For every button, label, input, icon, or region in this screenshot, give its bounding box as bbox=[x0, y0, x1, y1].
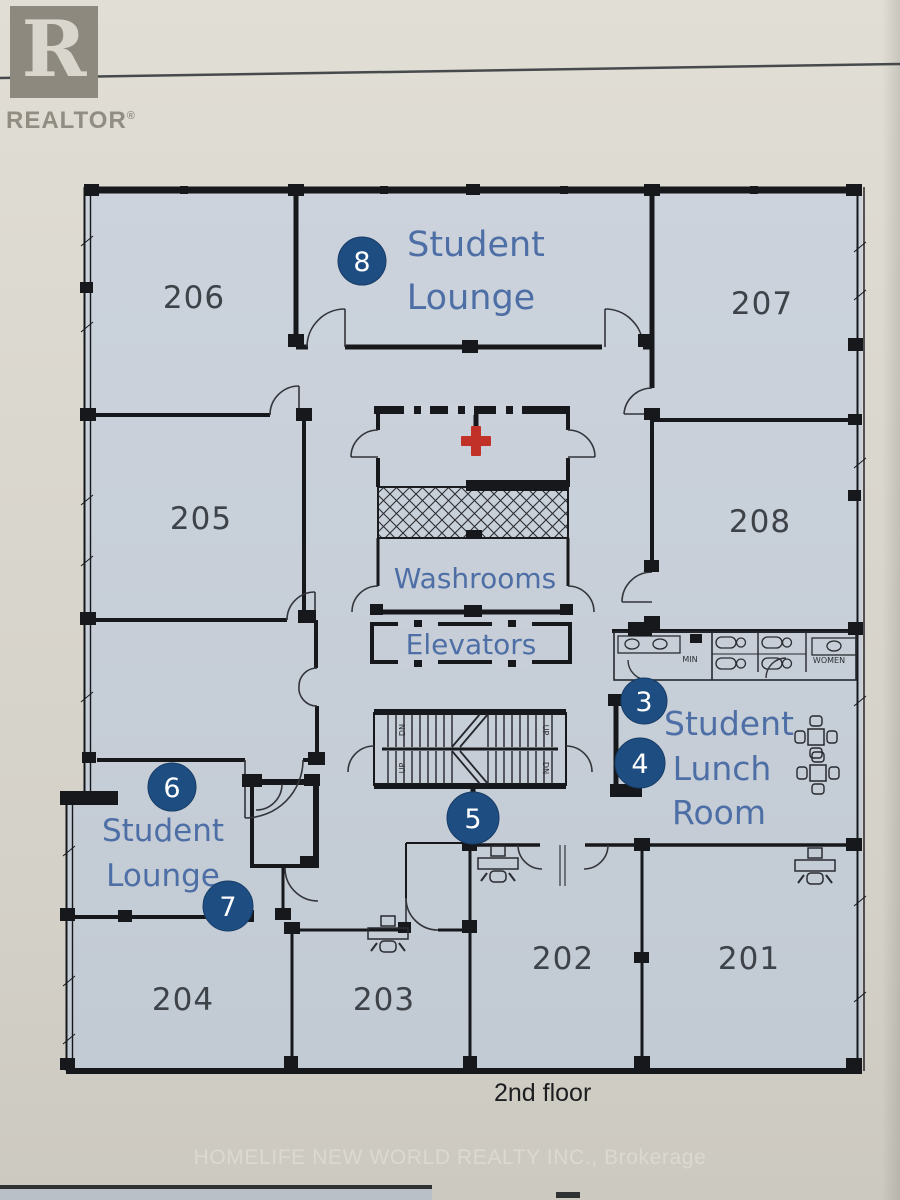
realtor-logo-icon: R bbox=[10, 6, 98, 98]
marker-5: 5 bbox=[447, 792, 499, 844]
room-206-label: 206 bbox=[163, 280, 225, 316]
photo-of-floor-plan: DN UP UP DN MIN WOMEN bbox=[0, 0, 900, 1200]
room-203-label: 203 bbox=[353, 982, 415, 1018]
room-201-label: 201 bbox=[718, 941, 780, 977]
student-lounge-top-label-line1: Student bbox=[407, 225, 545, 265]
svg-text:4: 4 bbox=[631, 749, 648, 780]
stair-up-label: UP bbox=[398, 762, 407, 773]
room-204-label: 204 bbox=[152, 982, 214, 1018]
floor-label: 2nd floor bbox=[494, 1079, 591, 1107]
realtor-logo: R REALTOR® bbox=[6, 6, 126, 135]
floor-plan: DN UP UP DN MIN WOMEN bbox=[0, 0, 900, 1200]
shaft-hatched-area bbox=[378, 480, 568, 539]
realtor-logo-word: REALTOR® bbox=[6, 107, 126, 135]
student-lounge-left-label-line2: Lounge bbox=[106, 858, 220, 894]
next-page-fragment bbox=[0, 1187, 580, 1200]
marker-8: 8 bbox=[338, 237, 386, 285]
washrooms-label: Washrooms bbox=[394, 562, 556, 595]
page-fold-line bbox=[0, 64, 900, 78]
stair-up-label: UP bbox=[541, 725, 550, 736]
svg-text:3: 3 bbox=[635, 687, 652, 718]
elevators-label: Elevators bbox=[406, 628, 537, 661]
student-lounge-top-label-line2: Lounge bbox=[407, 278, 535, 318]
room-208-label: 208 bbox=[729, 504, 791, 540]
student-lunch-label-line2: Lunch bbox=[673, 749, 772, 788]
student-lounge-left-label-line1: Student bbox=[102, 813, 224, 849]
marker-6: 6 bbox=[148, 763, 196, 811]
svg-text:7: 7 bbox=[219, 892, 236, 923]
realtor-logo-letter: R bbox=[22, 11, 87, 89]
registered-mark: ® bbox=[127, 110, 136, 122]
stair-dn-label: DN bbox=[398, 724, 407, 736]
stair-dn-label: DN bbox=[541, 762, 550, 774]
brokerage-watermark: HOMELIFE NEW WORLD REALTY INC., Brokerag… bbox=[0, 1146, 900, 1170]
room-207-label: 207 bbox=[731, 286, 793, 322]
room-202-label: 202 bbox=[532, 941, 594, 977]
womens-washroom-label: WOMEN bbox=[813, 656, 845, 665]
urinal-icon bbox=[690, 634, 702, 643]
svg-text:6: 6 bbox=[163, 773, 180, 804]
svg-text:8: 8 bbox=[353, 247, 370, 278]
marker-4: 4 bbox=[615, 738, 665, 788]
svg-text:5: 5 bbox=[464, 804, 481, 835]
mens-washroom-label: MIN bbox=[682, 655, 697, 664]
marker-7: 7 bbox=[203, 881, 253, 931]
marker-3: 3 bbox=[621, 678, 667, 724]
room-205-label: 205 bbox=[170, 501, 232, 537]
core-window-gaps bbox=[404, 404, 522, 415]
student-lunch-label-line3: Room bbox=[672, 793, 766, 832]
student-lunch-label-line1: Student bbox=[664, 704, 794, 743]
